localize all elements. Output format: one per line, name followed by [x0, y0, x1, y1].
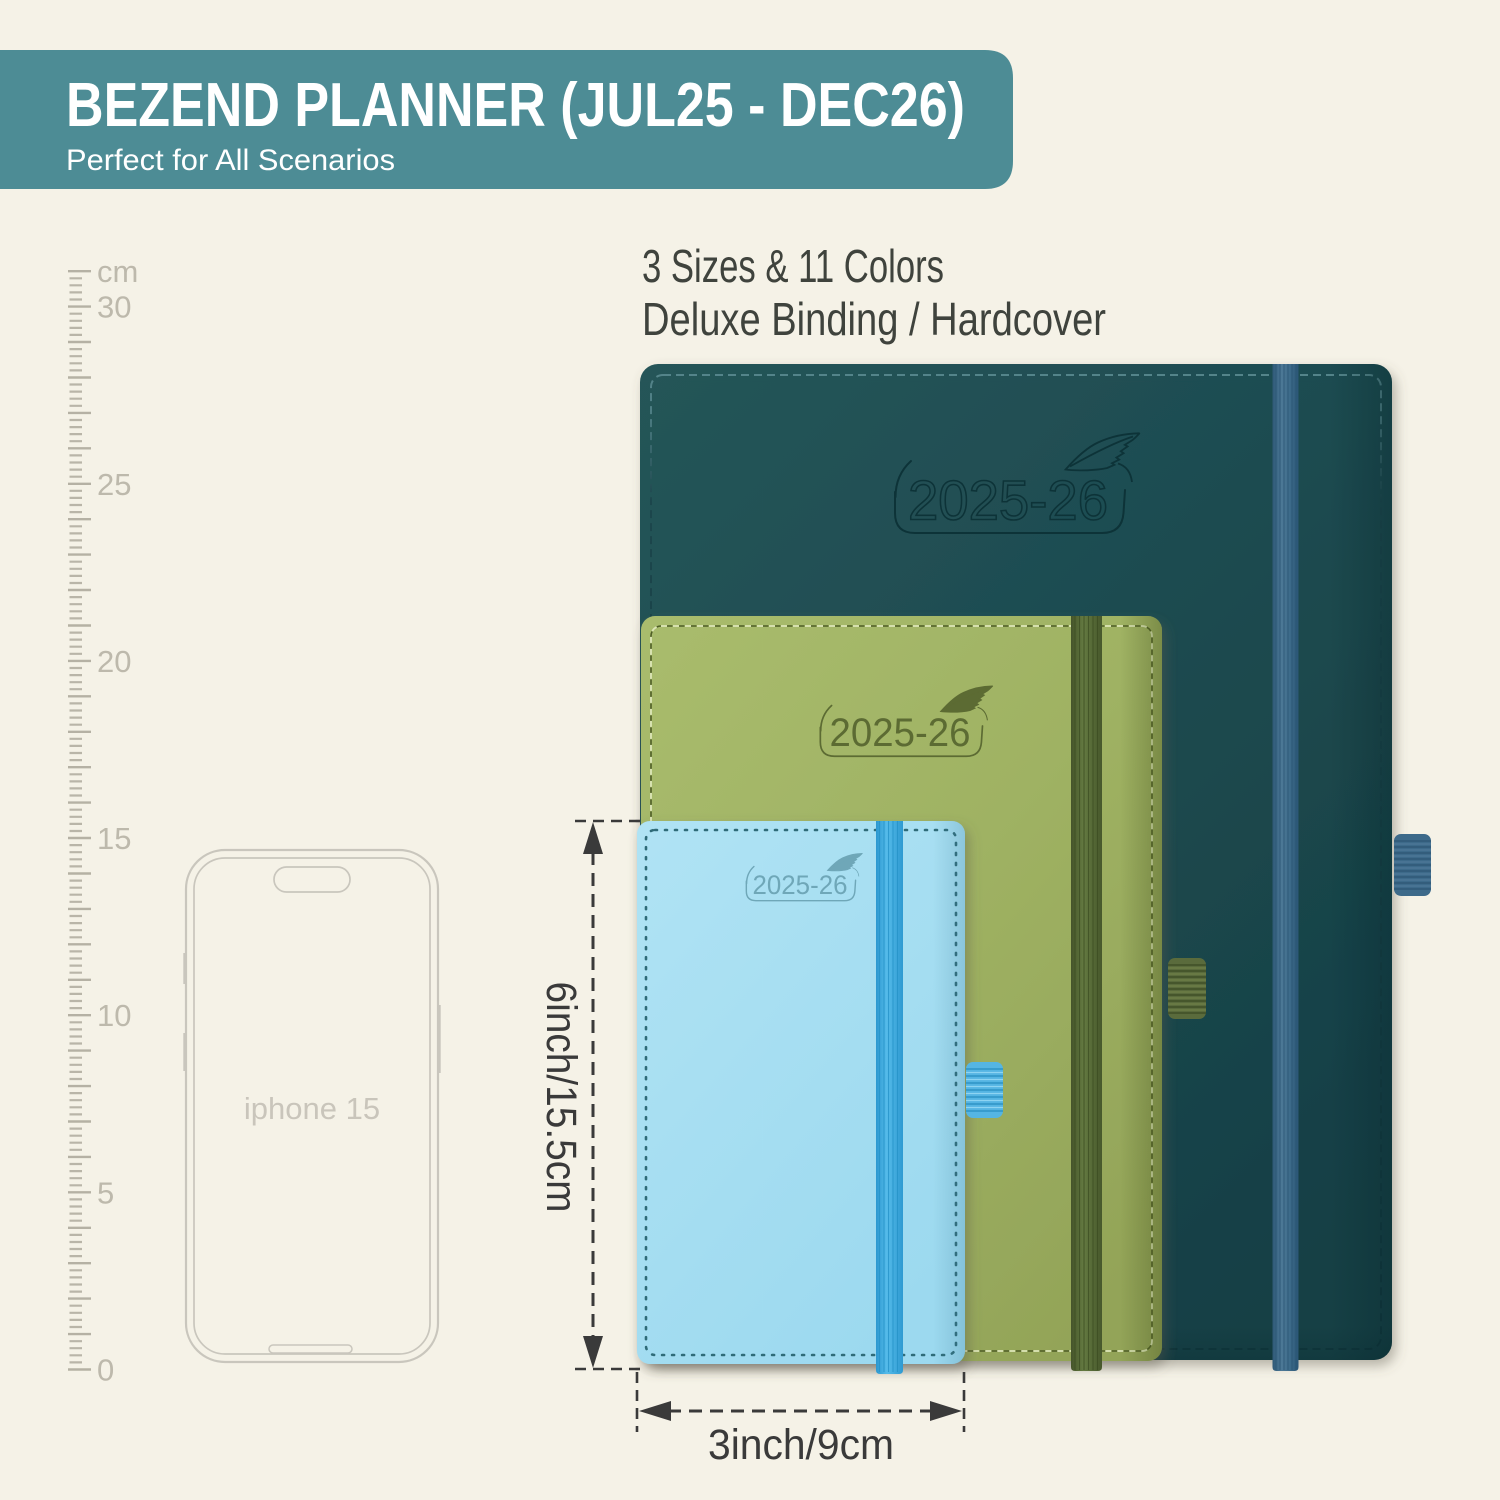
svg-text:0: 0: [97, 1353, 114, 1388]
svg-text:10: 10: [97, 998, 131, 1033]
svg-text:BEZEND PLANNER (JUL25 - DEC26): BEZEND PLANNER (JUL25 - DEC26): [66, 71, 965, 140]
svg-text:30: 30: [97, 290, 131, 325]
svg-text:2025-26: 2025-26: [830, 711, 971, 755]
svg-text:15: 15: [97, 821, 131, 856]
svg-text:3inch/9cm: 3inch/9cm: [708, 1421, 894, 1469]
svg-text:cm: cm: [97, 254, 138, 289]
svg-text:2025-26: 2025-26: [908, 469, 1108, 532]
svg-text:3 Sizes & 11 Colors: 3 Sizes & 11 Colors: [642, 240, 944, 292]
svg-text:Perfect for All Scenarios: Perfect for All Scenarios: [66, 144, 395, 177]
svg-text:20: 20: [97, 644, 131, 679]
svg-text:Deluxe Binding / Hardcover: Deluxe Binding / Hardcover: [642, 293, 1106, 345]
svg-text:25: 25: [97, 467, 131, 502]
svg-text:6inch/15.5cm: 6inch/15.5cm: [537, 982, 585, 1213]
svg-text:2025-26: 2025-26: [753, 870, 848, 900]
svg-text:5: 5: [97, 1175, 114, 1210]
svg-text:iphone 15: iphone 15: [244, 1091, 380, 1126]
